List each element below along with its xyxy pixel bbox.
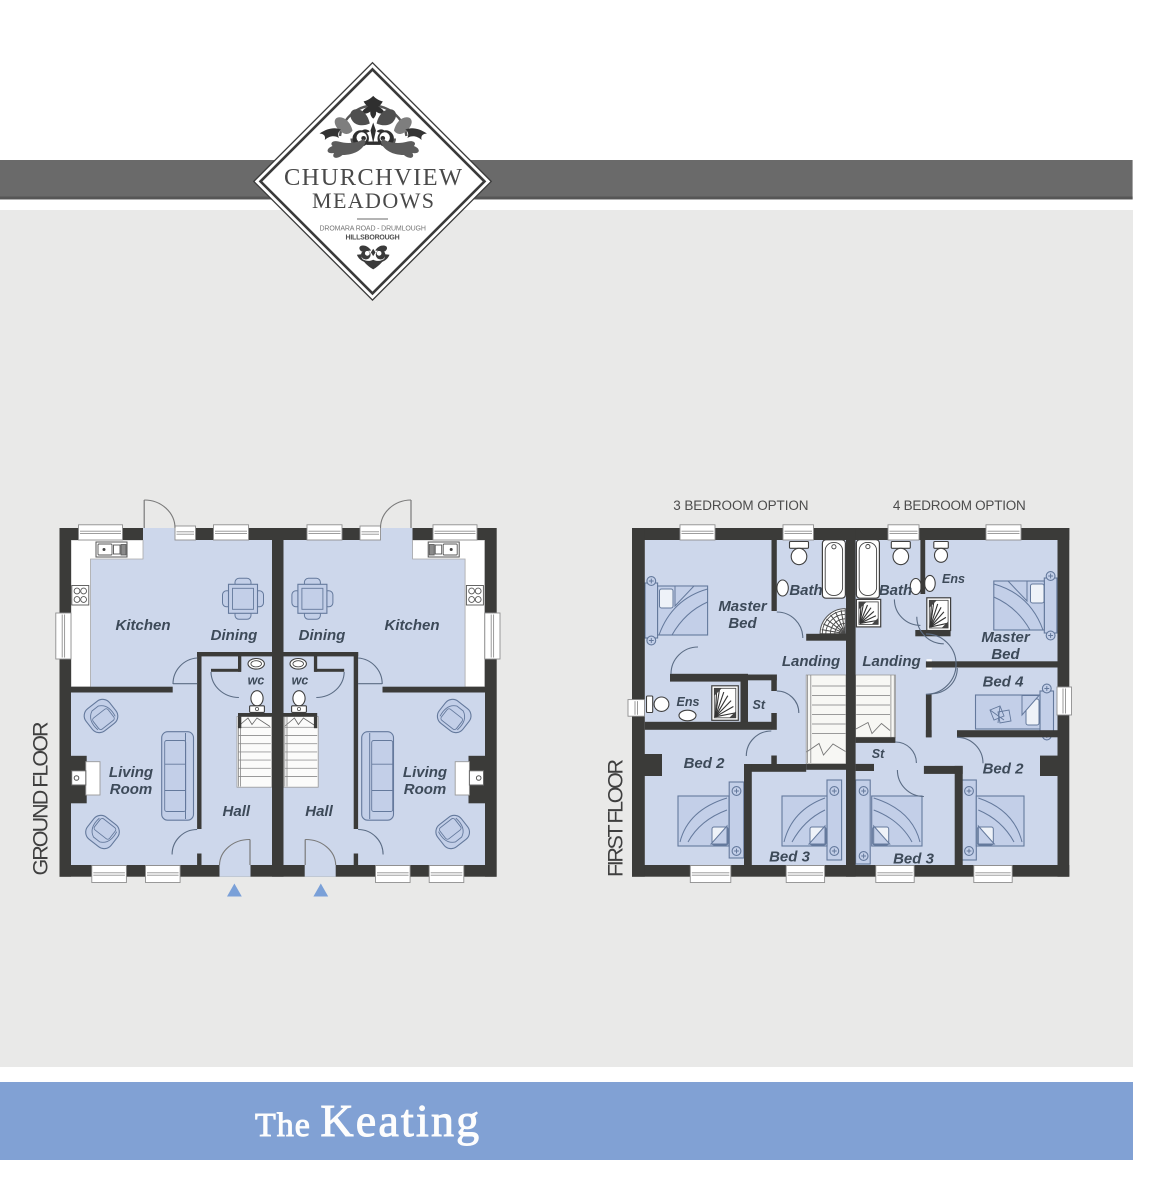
svg-text:Ens: Ens xyxy=(677,695,700,709)
svg-text:Hall: Hall xyxy=(223,803,251,820)
svg-text:Room: Room xyxy=(404,781,447,798)
svg-text:Living: Living xyxy=(403,764,447,781)
svg-text:Bed 3: Bed 3 xyxy=(893,851,935,868)
svg-text:HILLSBOROUGH: HILLSBOROUGH xyxy=(346,235,401,242)
svg-text:Dining: Dining xyxy=(299,627,346,644)
svg-text:CHURCHVIEW: CHURCHVIEW xyxy=(284,164,463,191)
svg-text:wc: wc xyxy=(248,674,265,688)
svg-text:St: St xyxy=(753,698,766,712)
svg-text:Dining: Dining xyxy=(211,627,258,644)
svg-text:Master: Master xyxy=(981,629,1031,646)
svg-text:Bed 2: Bed 2 xyxy=(983,761,1025,778)
svg-text:GROUND FLOOR: GROUND FLOOR xyxy=(29,722,53,876)
svg-text:FIRST FLOOR: FIRST FLOOR xyxy=(604,759,628,877)
svg-text:4 BEDROOM OPTION: 4 BEDROOM OPTION xyxy=(893,498,1027,513)
svg-text:Landing: Landing xyxy=(782,653,840,670)
svg-text:Bed 3: Bed 3 xyxy=(769,849,811,866)
svg-text:St: St xyxy=(872,747,885,761)
svg-text:Room: Room xyxy=(110,781,153,798)
svg-text:Bed: Bed xyxy=(991,646,1020,663)
svg-text:Master: Master xyxy=(718,598,768,615)
svg-text:Bed: Bed xyxy=(728,615,757,632)
svg-text:Landing: Landing xyxy=(862,653,920,670)
svg-text:Bed 2: Bed 2 xyxy=(684,755,726,772)
svg-text:Bed 4: Bed 4 xyxy=(983,674,1025,691)
svg-text:Bath: Bath xyxy=(879,582,912,599)
svg-text:Ens: Ens xyxy=(942,572,965,586)
svg-text:3 BEDROOM OPTION: 3 BEDROOM OPTION xyxy=(673,498,810,513)
svg-text:Kitchen: Kitchen xyxy=(384,617,439,634)
svg-text:DROMARA ROAD - DRUMLOUGH: DROMARA ROAD - DRUMLOUGH xyxy=(320,226,427,233)
svg-text:Living: Living xyxy=(109,764,153,781)
svg-text:MEADOWS: MEADOWS xyxy=(312,188,434,213)
svg-text:Kitchen: Kitchen xyxy=(115,617,170,634)
svg-text:Bath: Bath xyxy=(789,582,822,599)
svg-text:Hall: Hall xyxy=(305,803,333,820)
svg-text:wc: wc xyxy=(292,674,309,688)
